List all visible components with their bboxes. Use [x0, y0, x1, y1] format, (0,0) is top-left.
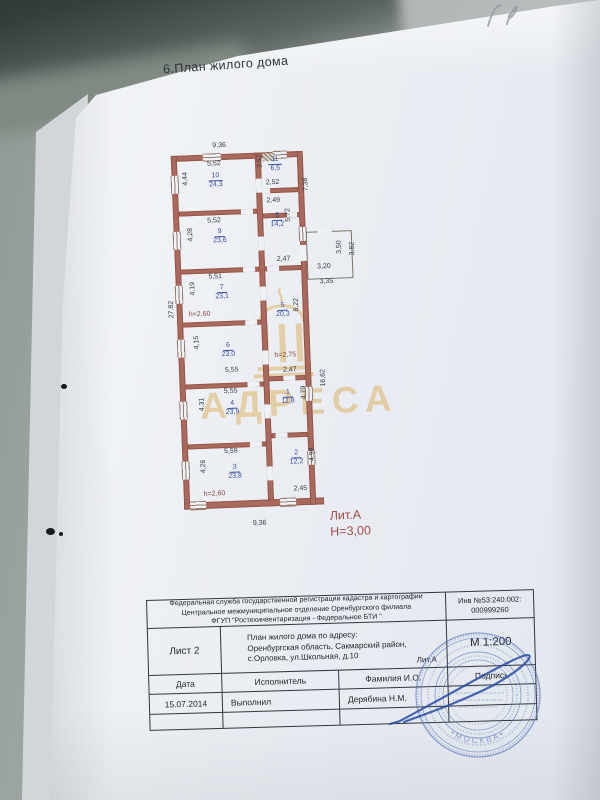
- dim-label: 16,62: [319, 361, 327, 395]
- sheet-cell: Лист 2: [148, 627, 222, 676]
- dim-label: 5,52: [207, 160, 221, 168]
- pencil-mark: [470, 0, 530, 35]
- dim-label: 4,44: [181, 162, 189, 196]
- room-label: 423,9: [220, 399, 245, 418]
- door-gap: [258, 236, 265, 250]
- dim-label: 3,35: [320, 278, 334, 286]
- dim-label: 5,72: [284, 198, 292, 232]
- window-symbol: [280, 497, 296, 507]
- wall-segment: [171, 156, 191, 510]
- room-label: 111,8: [276, 388, 301, 407]
- window-symbol: [177, 340, 186, 358]
- door-gap: [245, 320, 257, 325]
- room-label: 520,3: [270, 301, 295, 320]
- dim-label: 5,51: [208, 273, 222, 281]
- dim-label: 5,59: [224, 448, 238, 456]
- door-gap: [262, 350, 269, 364]
- room-label: 623,0: [216, 341, 241, 360]
- dim-label: 2,49: [266, 197, 280, 205]
- window-symbol: [170, 176, 179, 194]
- dim-label: 3,50: [335, 230, 343, 264]
- extension-outline: [306, 230, 354, 280]
- dim-label: 4,79: [300, 375, 308, 409]
- dim-label: 4,31: [198, 387, 206, 421]
- window-symbol: [173, 232, 182, 250]
- dim-label: 4,26: [200, 449, 208, 483]
- dim-label: 4,19: [189, 272, 197, 306]
- room-label: 923,6: [208, 228, 233, 247]
- door-gap: [267, 466, 274, 480]
- door-gap: [283, 375, 295, 380]
- window-symbol: [179, 402, 188, 420]
- room-label: 723,1: [210, 284, 235, 303]
- litera-label: Лит.А Н=3,00: [329, 507, 371, 540]
- dim-label: 2,57: [256, 144, 264, 178]
- hole-punch-dot: [46, 528, 55, 535]
- window-symbol: [181, 461, 190, 479]
- door-gap: [247, 382, 259, 387]
- dim-label: 3,82: [348, 231, 356, 265]
- door-gap: [267, 266, 279, 271]
- door-gap: [250, 442, 262, 447]
- window-symbol: [190, 501, 206, 511]
- dim-label: 4,98: [308, 437, 316, 471]
- signature-scribble: [380, 640, 550, 735]
- dim-label: 5,55: [225, 367, 239, 375]
- date-value: 15.07.2014: [150, 693, 224, 715]
- door-gap: [275, 433, 287, 438]
- room-label: 116,5: [263, 156, 288, 175]
- room-label: 1024,3: [203, 172, 228, 191]
- dim-label: 5,55: [224, 388, 238, 396]
- dim-label: 2,47: [283, 366, 297, 374]
- door-gap: [260, 286, 267, 300]
- door-gap: [264, 404, 271, 418]
- dim-label: 2,47: [277, 255, 291, 263]
- dim-label: 9,36: [253, 520, 267, 528]
- dim-label: 5,52: [207, 217, 221, 225]
- door-gap: [262, 188, 270, 193]
- window-symbol: [175, 286, 184, 304]
- hole-punch-dot: [61, 384, 67, 389]
- dim-label: 4,15: [193, 325, 201, 359]
- wall-segment: [255, 153, 274, 500]
- height-note: h=2,60: [189, 311, 211, 319]
- floor-plan: 1024,3 923,6 723,1 623,0 423,9 323,8 116…: [162, 132, 393, 555]
- hole-punch-dot: [59, 532, 63, 536]
- room-label: 323,8: [223, 463, 248, 482]
- dim-label: 8,22: [292, 288, 300, 322]
- dim-label: 4,28: [187, 218, 195, 252]
- dim-label: 9,36: [212, 142, 226, 150]
- door-gap: [243, 267, 255, 272]
- dim-label: 27,82: [167, 292, 175, 326]
- height-note: h=2,60: [204, 490, 226, 498]
- door-gap: [318, 229, 332, 234]
- photographed-document: 6.План жилого дома АДРЕСА: [0, 0, 600, 800]
- dim-label: 2,45: [293, 485, 307, 493]
- col-header-date: Дата: [149, 674, 223, 695]
- room-label: 212,2: [284, 449, 309, 468]
- dim-label: 3,20: [317, 263, 331, 271]
- dim-label: 7,38: [302, 167, 310, 201]
- door-gap: [241, 209, 253, 214]
- height-note: h=2,75: [274, 351, 296, 359]
- dim-label: 2,52: [266, 179, 280, 187]
